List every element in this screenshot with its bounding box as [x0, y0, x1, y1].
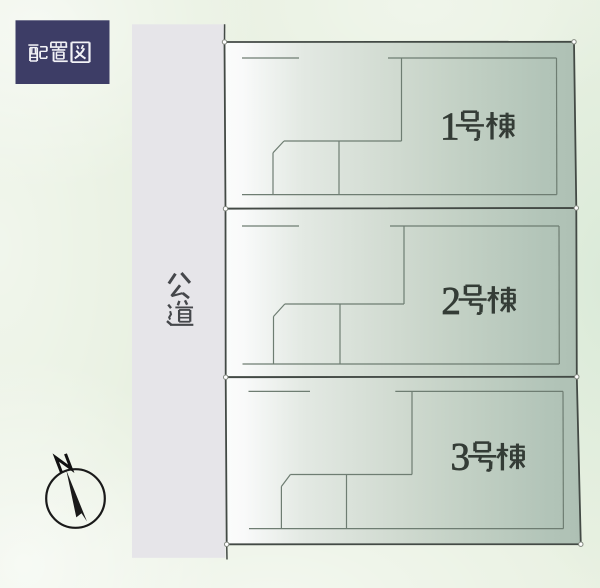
svg-text:3: 3: [450, 436, 470, 479]
svg-text:1: 1: [440, 105, 460, 148]
svg-text:2: 2: [441, 279, 461, 322]
